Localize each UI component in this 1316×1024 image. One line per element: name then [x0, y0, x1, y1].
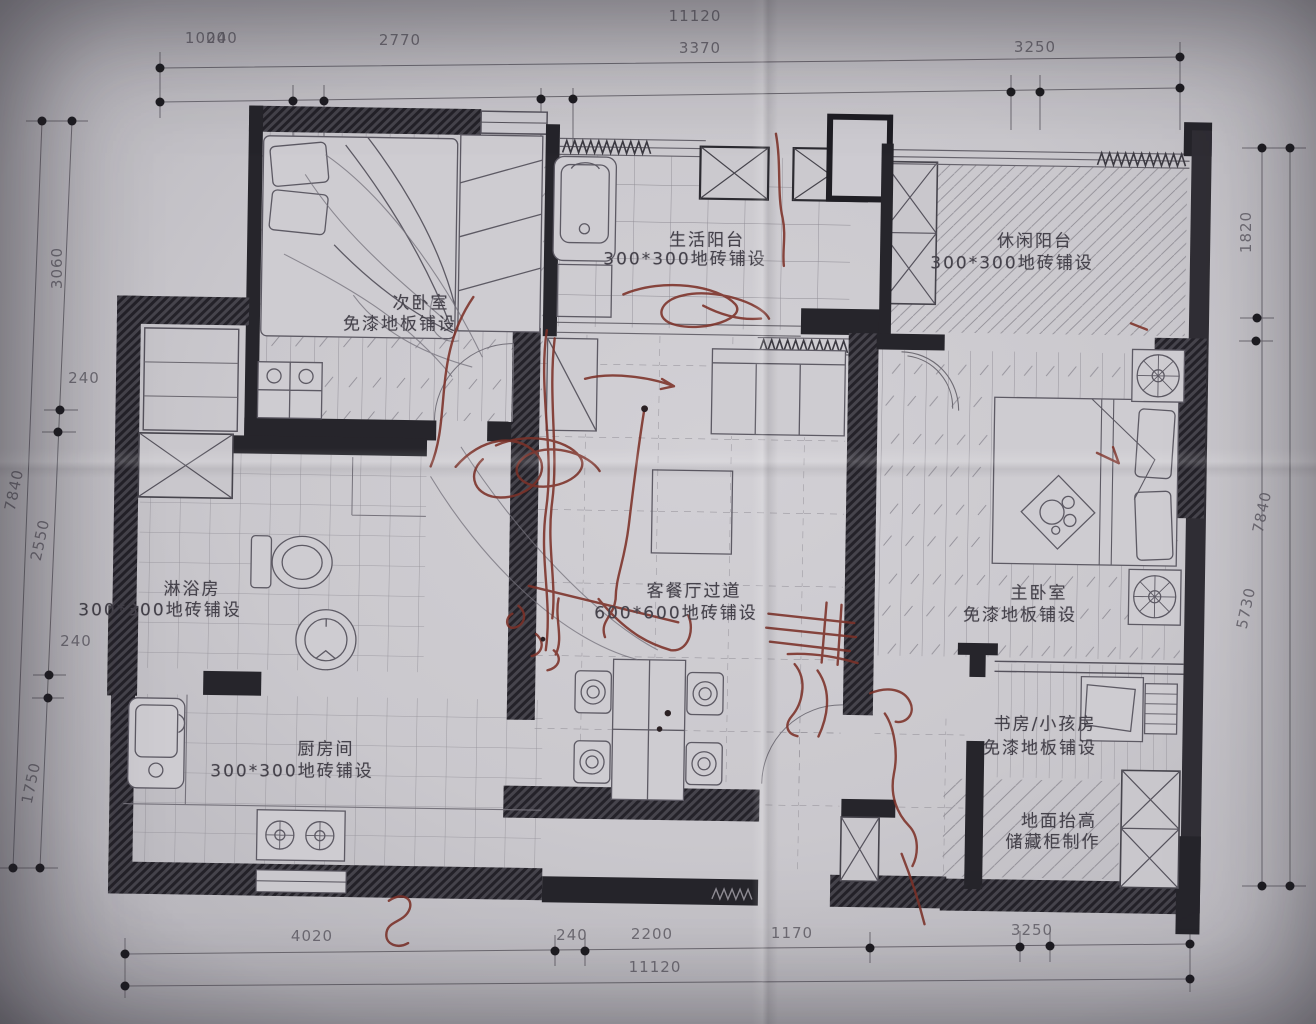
- room-label-shower-finish: 300*300地砖铺设: [78, 596, 241, 621]
- toilet-symbol: [251, 536, 333, 589]
- dim-left-seg-b: 240: [68, 369, 100, 387]
- room-label-kitchen-finish: 300*300地砖铺设: [210, 757, 373, 782]
- floor-entry: [758, 704, 841, 873]
- dim-bottom-seg-e: 3250: [1011, 921, 1053, 939]
- dim-top-overall: 11120: [669, 7, 722, 25]
- stove-symbol: [256, 810, 345, 861]
- floor-plan-drawing: [0, 0, 1316, 1024]
- dining-table-symbol: [611, 659, 685, 800]
- bed2-dresser: [257, 362, 322, 419]
- room-label-master-finish: 免漆地板铺设: [963, 601, 1077, 626]
- master-bed-symbol: [992, 397, 1179, 566]
- dim-top-seg-d: 3250: [1014, 38, 1056, 56]
- fan-icon: [1128, 569, 1181, 625]
- washbasin-symbol: [295, 609, 356, 670]
- floor-hall: [872, 717, 964, 876]
- dim-bottom-seg-a: 4020: [291, 927, 333, 945]
- dim-bottom-seg-b: 240: [556, 926, 588, 944]
- dim-top-seg-c: 3370: [679, 39, 721, 57]
- dim-right-seg-a: 1820: [1237, 211, 1255, 253]
- dim-bottom-seg-d: 1170: [771, 924, 813, 942]
- dim-top-seg-b: 2770: [379, 31, 421, 49]
- room-label-living-dining-finish: 600*600地砖铺设: [594, 599, 757, 624]
- room-label-utility-balcony-finish: 300*300地砖铺设: [603, 245, 766, 270]
- dim-bottom-overall: 11120: [629, 958, 682, 976]
- fan-icon: [1132, 349, 1185, 402]
- room-label-bedroom2-finish: 免漆地板铺设: [343, 310, 457, 335]
- room-label-study-finish: 免漆地板铺设: [983, 734, 1097, 759]
- room-label-study-name: 书房/小孩房: [994, 710, 1097, 735]
- room-label-leisure-balcony-finish: 300*300地砖铺设: [930, 249, 1093, 274]
- kitchen-sink-symbol: [128, 698, 185, 789]
- dim-left-seg-d: 240: [60, 632, 92, 650]
- dim-left-seg-a: 3060: [48, 247, 66, 289]
- dim-bottom-seg-c: 2200: [631, 925, 673, 943]
- room-label-storage-finish: 储藏柜制作: [1006, 828, 1101, 853]
- sofa-symbol: [711, 349, 845, 436]
- floor-plan-photo: 11120 1000 240 2770 3370 3250 4020 240 2…: [0, 0, 1316, 1024]
- dim-top-seg-a2: 240: [206, 29, 238, 47]
